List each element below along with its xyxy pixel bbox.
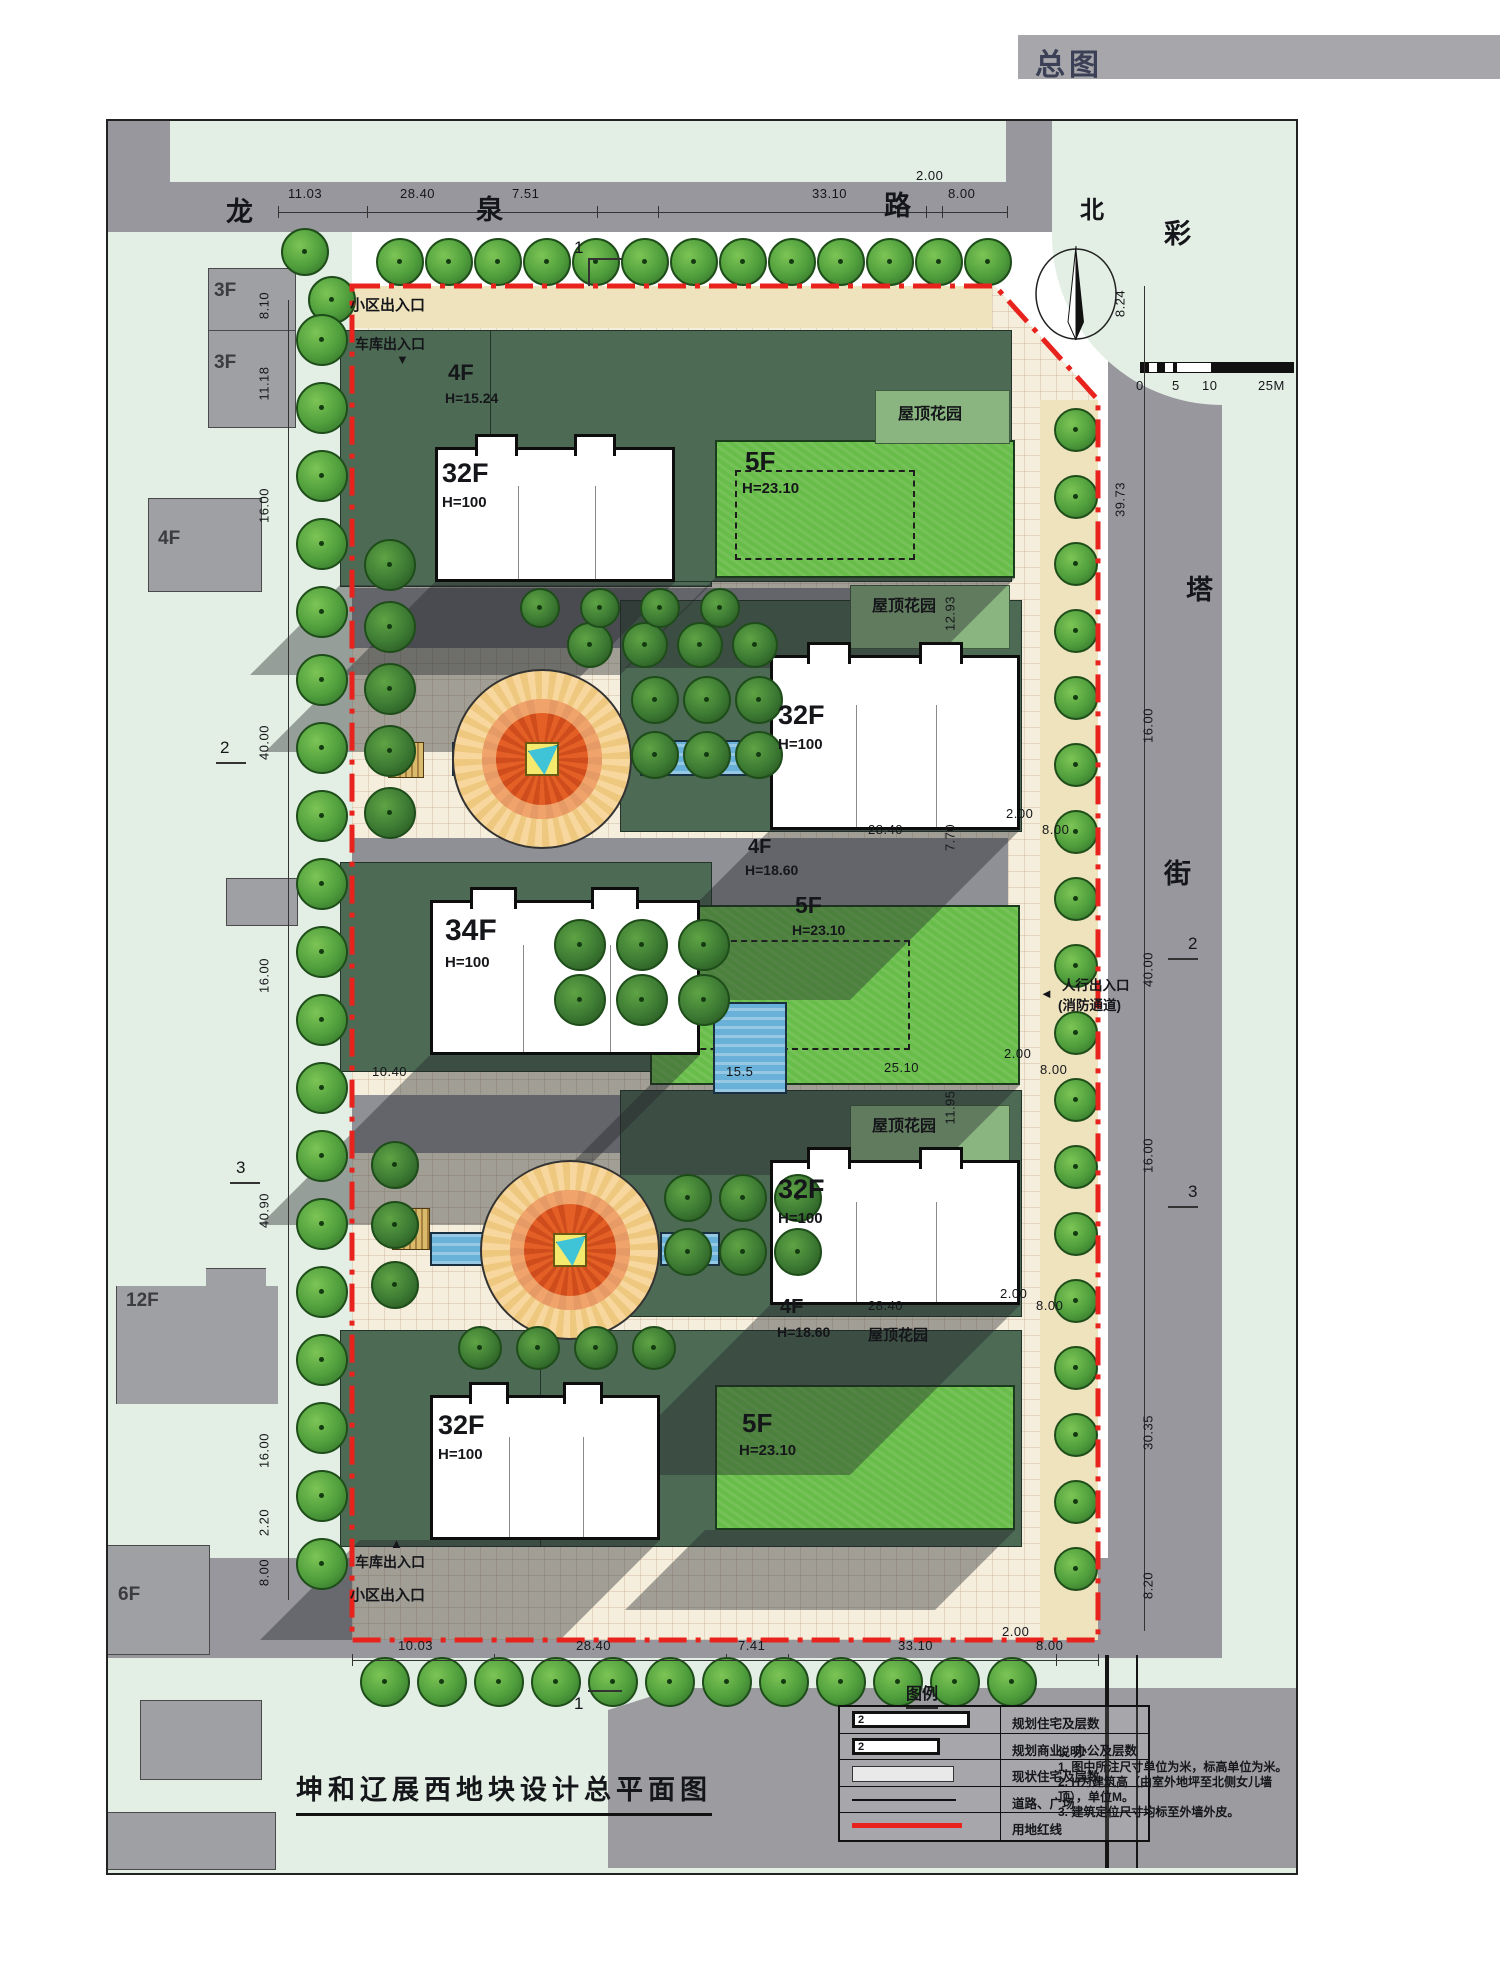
- tree-icon: [364, 663, 416, 715]
- tree-icon: [296, 858, 348, 910]
- entrance-community-bottom: 小区出入口: [350, 1584, 425, 1605]
- tree-icon: [474, 1657, 524, 1707]
- tower5-height: H=100: [438, 1446, 483, 1463]
- tree-icon: [417, 1657, 467, 1707]
- tree-icon: [816, 1657, 866, 1707]
- tree-icon: [1054, 1145, 1098, 1189]
- tree-icon: [554, 919, 606, 971]
- tower5-floors: 32F: [438, 1410, 485, 1441]
- dim-inner-u5: 12.93: [943, 582, 958, 646]
- tree-icon: [670, 238, 718, 286]
- tree-icon: [296, 1470, 348, 1522]
- tree-icon: [364, 787, 416, 839]
- tree-icon: [677, 622, 723, 668]
- tree-icon: [371, 1141, 419, 1189]
- tree-icon: [371, 1201, 419, 1249]
- dim-right-7: 8.20: [1141, 1554, 1156, 1618]
- dim-top-3: 7.51: [512, 186, 539, 201]
- tower2-height: H=100: [778, 736, 823, 753]
- tree-icon: [1054, 1480, 1098, 1524]
- tree-icon: [616, 919, 668, 971]
- tree-icon: [732, 622, 778, 668]
- existing-3f-a-label: 3F: [214, 280, 236, 302]
- tree-icon: [645, 1657, 695, 1707]
- tree-icon: [1054, 1078, 1098, 1122]
- tree-icon: [296, 586, 348, 638]
- dim-left-5: 16.00: [257, 944, 272, 1008]
- road-char-ta: 塔: [1186, 568, 1213, 607]
- tree-icon: [1054, 542, 1098, 586]
- tree-icon: [376, 238, 424, 286]
- entrance-garage-top: 车库出入口: [355, 334, 425, 354]
- existing-6f-label: 6F: [118, 1584, 140, 1606]
- road-char-lu: 路: [884, 184, 911, 223]
- dim-bot-4: 33.10: [898, 1638, 933, 1653]
- road-char-cai: 彩: [1164, 212, 1191, 251]
- tree-icon: [296, 790, 348, 842]
- legend-symbol-red-line: [852, 1823, 962, 1828]
- dim-left-3: 16.00: [257, 474, 272, 538]
- tree-icon: [281, 228, 329, 276]
- tree-icon: [621, 238, 669, 286]
- tree-icon: [964, 238, 1012, 286]
- tree-icon: [622, 622, 668, 668]
- slab1-height: H=23.10: [742, 480, 799, 497]
- note-item-2: 2. H为建筑高（由室外地坪至北侧女儿墙顶），单位M。: [1058, 1775, 1300, 1805]
- dim-line-left: [288, 300, 289, 1600]
- tree-icon: [364, 601, 416, 653]
- tree-icon: [1054, 676, 1098, 720]
- tree-icon: [554, 974, 606, 1026]
- legend-symbol-planned-residential: 2: [852, 1711, 970, 1728]
- tree-icon: [296, 654, 348, 706]
- section-marker-3-right: 3: [1188, 1182, 1197, 1202]
- tree-icon: [364, 539, 416, 591]
- tree-icon: [296, 1266, 348, 1318]
- tree-icon: [640, 588, 680, 628]
- entrance-community-top: 小区出入口: [350, 294, 425, 315]
- entrance-fire-passage: (消防通道): [1058, 994, 1121, 1014]
- dim-inner-l4: 11.95: [943, 1076, 958, 1140]
- existing-4f-label: 4F: [158, 528, 180, 550]
- podium3-floors: 4F: [780, 1296, 803, 1319]
- slab2-floors: 5F: [795, 892, 822, 919]
- tower4-height: H=100: [778, 1210, 823, 1227]
- tree-icon: [678, 974, 730, 1026]
- dim-left-7: 16.00: [257, 1419, 272, 1483]
- dim-right-5: 16.00: [1141, 1124, 1156, 1188]
- tree-icon: [296, 722, 348, 774]
- dim-top-2: 28.40: [400, 186, 435, 201]
- existing-12f-label: 12F: [126, 1290, 159, 1312]
- tower4-floors: 32F: [778, 1174, 825, 1205]
- dim-right-6: 30.35: [1141, 1401, 1156, 1465]
- tree-icon: [719, 238, 767, 286]
- note-item-1: 1. 图中所注尺寸单位为米，标高单位为米。: [1058, 1760, 1300, 1775]
- tree-icon: [574, 1326, 618, 1370]
- drawing-title: 坤和辽展西地块设计总平面图: [296, 1768, 712, 1816]
- tree-icon: [1054, 609, 1098, 653]
- section-marker-2-left: 2: [220, 738, 229, 758]
- dim-left-4: 40.00: [257, 711, 272, 775]
- podium3-height: H=18.60: [777, 1324, 830, 1340]
- dim-bot-2: 28.40: [576, 1638, 611, 1653]
- tree-icon: [371, 1261, 419, 1309]
- site-plan-sheet: 总图: [0, 0, 1500, 1964]
- tree-icon: [296, 1334, 348, 1386]
- dim-inner-u1: 28.40: [868, 822, 903, 837]
- tree-icon: [296, 314, 348, 366]
- tree-icon: [768, 238, 816, 286]
- tree-icon: [364, 725, 416, 777]
- dim-right-1: 8.24: [1113, 272, 1128, 336]
- tree-icon: [296, 1198, 348, 1250]
- roof-garden-3: 屋顶花园: [872, 1112, 936, 1136]
- north-label: 北: [1080, 190, 1104, 225]
- tree-icon: [567, 622, 613, 668]
- road-char-long: 龙: [226, 190, 253, 229]
- tree-icon: [580, 588, 620, 628]
- tree-icon: [296, 1538, 348, 1590]
- slab3-height: H=23.10: [739, 1442, 796, 1459]
- dim-bot-5: 2.00: [1002, 1624, 1029, 1639]
- dim-inner-l3: 8.00: [1036, 1298, 1063, 1313]
- tree-icon: [616, 974, 668, 1026]
- slab2-height: H=23.10: [792, 922, 845, 938]
- notes-block: 说明: 1. 图中所注尺寸单位为米，标高单位为米。 2. H为建筑高（由室外地坪…: [1058, 1745, 1300, 1820]
- garage-arrow-up-icon: ▲: [390, 1536, 403, 1551]
- podium2-height: H=18.60: [745, 862, 798, 878]
- tree-icon: [474, 238, 522, 286]
- tree-icon: [1054, 408, 1098, 452]
- tower2-floors: 32F: [778, 700, 825, 731]
- tree-icon: [296, 382, 348, 434]
- tower3-height: H=100: [445, 954, 490, 971]
- dim-inner-m3: 25.10: [884, 1060, 919, 1075]
- podium1-height: H=15.24: [445, 390, 498, 406]
- dim-left-2: 11.18: [257, 352, 272, 416]
- dim-left-9: 8.00: [257, 1541, 272, 1605]
- dim-inner-m1: 10.40: [372, 1064, 407, 1079]
- legend-symbol-road-plaza: [852, 1799, 956, 1801]
- section-marker-1-top: 1: [574, 238, 583, 258]
- tree-icon: [631, 676, 679, 724]
- legend-symbol-existing-residential: [852, 1766, 954, 1782]
- tree-icon: [632, 1326, 676, 1370]
- podium1-floors: 4F: [448, 360, 474, 386]
- tree-icon: [296, 518, 348, 570]
- note-item-3: 3. 建筑定位尺寸均标至外墙外皮。: [1058, 1805, 1300, 1820]
- dim-top-1: 11.03: [288, 186, 322, 201]
- dim-top-4: 33.10: [812, 186, 847, 201]
- tree-icon: [520, 588, 560, 628]
- tree-icon: [523, 238, 571, 286]
- dim-bot-6: 8.00: [1036, 1638, 1063, 1653]
- legend-label: 用地红线: [1012, 1819, 1062, 1838]
- tree-icon: [296, 1402, 348, 1454]
- tree-icon: [516, 1326, 560, 1370]
- tower1-height: H=100: [442, 494, 487, 511]
- dim-top-5: 2.00: [916, 168, 943, 183]
- tree-icon: [588, 1657, 638, 1707]
- tower1-floors: 32F: [442, 458, 489, 489]
- garage-arrow-down-icon: ▼: [396, 352, 409, 367]
- tree-icon: [425, 238, 473, 286]
- tree-icon: [664, 1228, 712, 1276]
- roof-garden-1: 屋顶花园: [898, 400, 962, 424]
- tree-icon: [817, 238, 865, 286]
- tree-icon: [1054, 1346, 1098, 1390]
- dim-inner-l2: 2.00: [1000, 1286, 1027, 1301]
- tree-icon: [1054, 1413, 1098, 1457]
- tree-icon: [719, 1228, 767, 1276]
- section-marker-3-left: 3: [236, 1158, 245, 1178]
- tree-icon: [458, 1326, 502, 1370]
- roof-garden-4: 屋顶花园: [868, 1324, 928, 1345]
- section-marker-1-bottom: 1: [574, 1694, 583, 1714]
- dim-left-6: 40.90: [257, 1179, 272, 1243]
- tree-icon: [360, 1657, 410, 1707]
- slab1-floors: 5F: [745, 446, 775, 477]
- dim-right-3: 16.00: [1141, 694, 1156, 758]
- dim-inner-m4: 2.00: [1004, 1046, 1031, 1061]
- tree-icon: [1054, 1011, 1098, 1055]
- tree-icon: [1054, 743, 1098, 787]
- roof-garden-2: 屋顶花园: [872, 592, 936, 616]
- tree-icon: [700, 588, 740, 628]
- dim-bot-3: 7.41: [738, 1638, 765, 1653]
- existing-3f-b-label: 3F: [214, 352, 236, 374]
- tree-icon: [735, 731, 783, 779]
- tree-icon: [683, 676, 731, 724]
- dim-right-4: 40.00: [1141, 938, 1156, 1002]
- legend-symbol-planned-commercial: 2: [852, 1738, 940, 1755]
- dim-left-1: 8.10: [257, 274, 272, 338]
- section-marker-2-right: 2: [1188, 934, 1197, 954]
- road-char-jie: 街: [1164, 852, 1191, 891]
- legend-label: 规划住宅及层数: [1012, 1713, 1100, 1732]
- tree-icon: [296, 926, 348, 978]
- dim-inner-u4: 8.00: [1042, 822, 1069, 837]
- dim-inner-u3: 2.00: [1006, 806, 1033, 821]
- tree-icon: [759, 1657, 809, 1707]
- tree-icon: [296, 1130, 348, 1182]
- dim-top-6: 8.00: [948, 186, 975, 201]
- tree-icon: [735, 676, 783, 724]
- tree-icon: [1054, 877, 1098, 921]
- tree-icon: [1054, 1212, 1098, 1256]
- tree-icon: [987, 1657, 1037, 1707]
- dim-bot-1: 10.03: [398, 1638, 433, 1653]
- tower3-floors: 34F: [445, 914, 497, 948]
- tree-icon: [296, 1062, 348, 1114]
- tree-icon: [702, 1657, 752, 1707]
- entrance-garage-bottom: 车库出入口: [355, 1552, 425, 1572]
- tree-icon: [683, 731, 731, 779]
- notes-title: 说明:: [1058, 1745, 1300, 1760]
- tree-icon: [296, 994, 348, 1046]
- tree-icon: [915, 238, 963, 286]
- tree-icon: [664, 1174, 712, 1222]
- dim-inner-l1: 28.40: [868, 1298, 903, 1313]
- tree-icon: [1054, 1547, 1098, 1591]
- tree-icon: [719, 1174, 767, 1222]
- dim-inner-m5: 8.00: [1040, 1062, 1067, 1077]
- dim-line-bottom: [352, 1660, 1098, 1661]
- dim-inner-u2: 7.70: [943, 806, 958, 870]
- dim-inner-m2: 15.5: [726, 1064, 753, 1079]
- pedestrian-arrow-left-icon: ◄: [1040, 986, 1053, 1001]
- tree-icon: [296, 450, 348, 502]
- tree-icon: [631, 731, 679, 779]
- north-compass-icon: [1030, 242, 1122, 342]
- tree-icon: [866, 238, 914, 286]
- podium2-floors: 4F: [748, 836, 771, 859]
- legend-row: 2 规划住宅及层数: [840, 1707, 1148, 1734]
- entrance-pedestrian: 人行出入口: [1062, 974, 1130, 994]
- slab3-floors: 5F: [742, 1408, 772, 1439]
- road-char-quan: 泉: [476, 188, 503, 227]
- tree-icon: [1054, 475, 1098, 519]
- tree-icon: [774, 1228, 822, 1276]
- dim-right-2: 39.73: [1113, 468, 1128, 532]
- tree-icon: [678, 919, 730, 971]
